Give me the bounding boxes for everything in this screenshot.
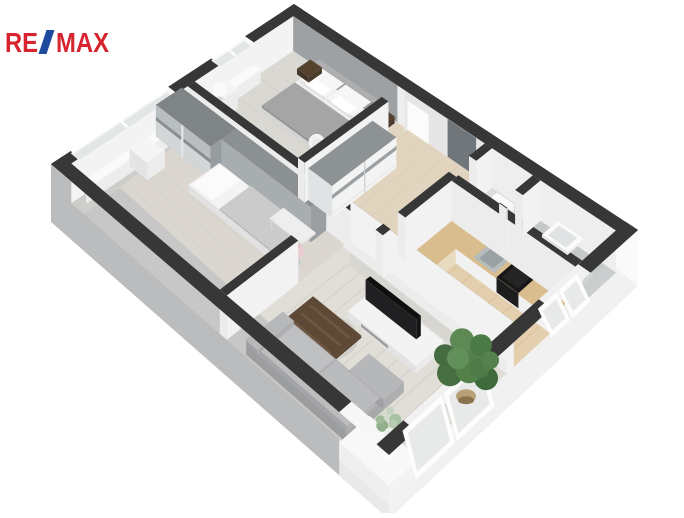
svg-text:RE: RE [5,27,38,58]
svg-text:MAX: MAX [56,27,109,58]
